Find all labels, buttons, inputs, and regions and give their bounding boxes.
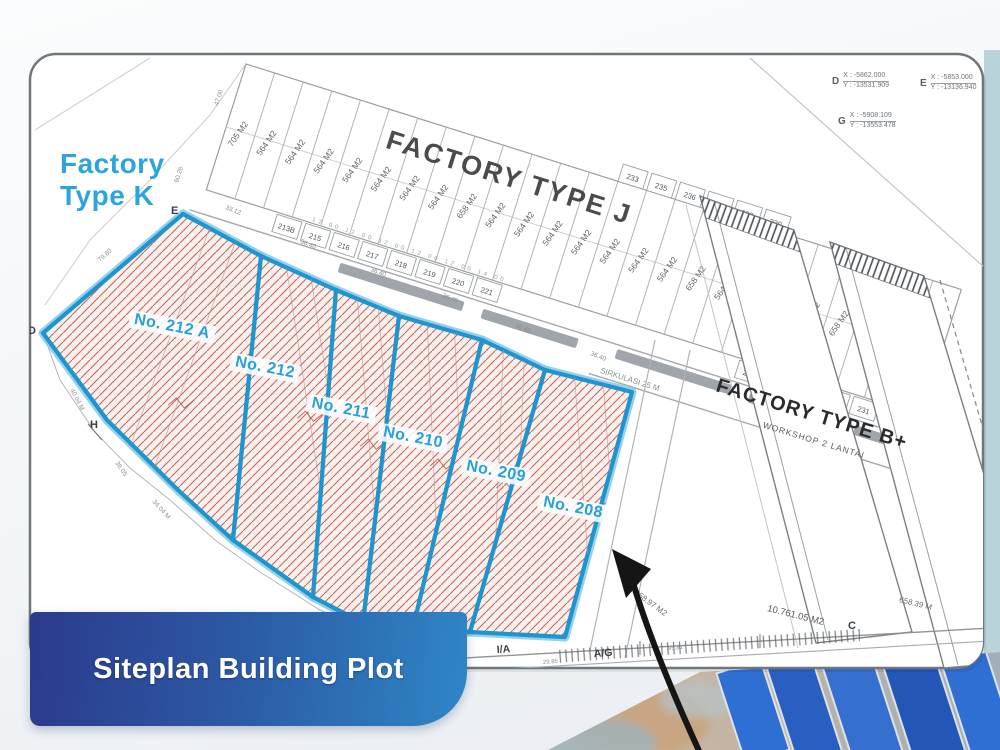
point-ia: I/A — [496, 643, 511, 656]
siteplan-poster: 705 M2564 M2564 M2564 M2564 M2564 M2564 … — [0, 0, 1000, 750]
factory-type-k-label: Factory Type K — [60, 148, 165, 212]
point-h: H — [90, 419, 98, 431]
coord-point-d: D X : -5862.000Y : -13531.909 — [832, 72, 889, 91]
coord-y: Y : -13531.909 — [843, 82, 889, 91]
coord-y: Y : -13136.940 — [931, 84, 977, 93]
point-ag: A/G — [593, 647, 612, 660]
coord-letter: D — [832, 76, 839, 87]
coord-point-e: E X : -5853.000Y : -13136.940 — [920, 74, 976, 93]
coord-point-g: G X : -5908.109Y : -13553.478 — [838, 112, 896, 131]
coord-x: X : -5908.109 — [850, 112, 896, 122]
point-c: C — [848, 620, 856, 632]
dim-label: 29.85 — [543, 659, 559, 666]
dim-label: 95.81 — [668, 645, 684, 652]
coord-y: Y : -13553.478 — [850, 122, 896, 131]
factory-k-line1: Factory — [60, 148, 165, 180]
background-strip — [984, 50, 1000, 710]
coord-letter: E — [920, 78, 927, 89]
coord-x: X : -5862.000 — [843, 72, 889, 82]
coord-x: X : -5853.000 — [931, 74, 977, 84]
point-e: E — [171, 205, 178, 217]
title-banner: Siteplan Building Plot — [30, 612, 467, 726]
factory-k-line2: Type K — [60, 180, 165, 212]
coord-letter: G — [838, 116, 846, 127]
banner-title: Siteplan Building Plot — [93, 653, 404, 686]
